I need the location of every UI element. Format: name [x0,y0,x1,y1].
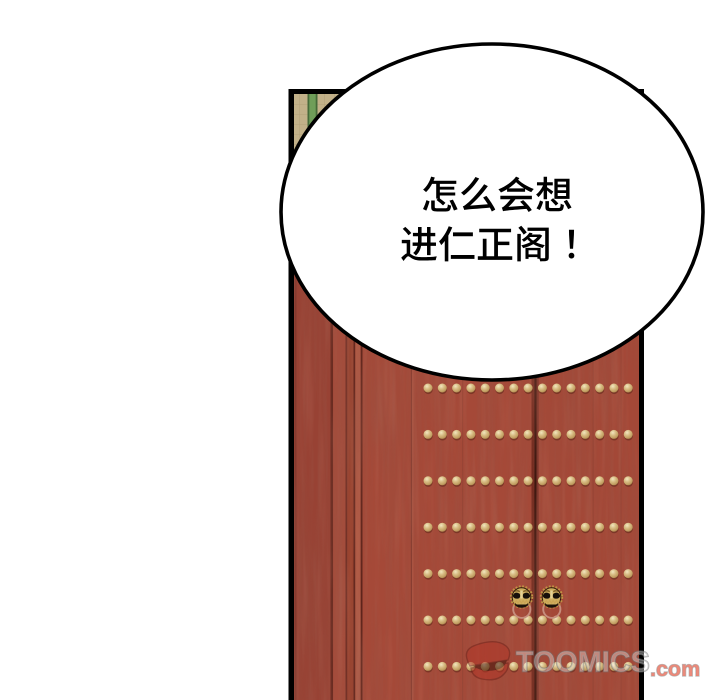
svg-text:TOOMICS: TOOMICS [516,647,650,679]
svg-text:.com: .com [650,657,700,681]
